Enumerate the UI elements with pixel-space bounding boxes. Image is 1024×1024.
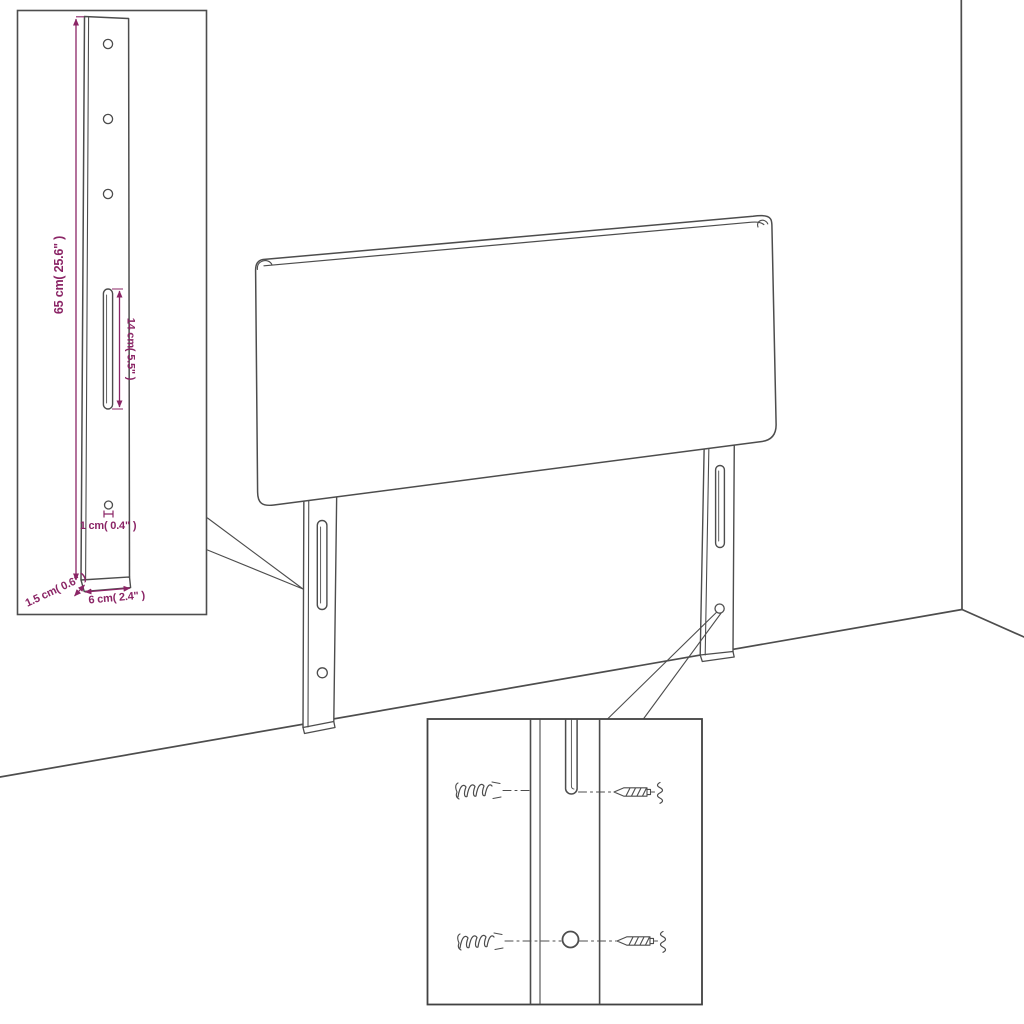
headboard-panel	[256, 216, 777, 506]
callout-lines	[208, 518, 721, 720]
product-diagram: 65 cm( 25.6" ) 14 cm( 5.5" ) 1 cm( 0.4" …	[0, 0, 1024, 1024]
dimension-1cm-label: 1 cm( 0.4" )	[80, 520, 137, 532]
dimension-65cm-label: 65 cm( 25.6" )	[52, 236, 66, 314]
headboard-right-leg	[700, 440, 734, 662]
headboard-left-leg	[303, 486, 337, 734]
mounting-inset-frame	[428, 719, 703, 1005]
wall-corner-line	[961, 0, 962, 610]
callout-left-inset-to-leg	[208, 518, 304, 589]
mounting-detail-inset	[428, 719, 703, 1005]
dimension-14cm-label: 14 cm( 5.5" )	[125, 318, 137, 381]
diagram-canvas: 65 cm( 25.6" ) 14 cm( 5.5" ) 1 cm( 0.4" …	[0, 0, 1024, 1024]
floor-corner-line-right	[962, 610, 1024, 638]
leg-detail-inset: 65 cm( 25.6" ) 14 cm( 5.5" ) 1 cm( 0.4" …	[18, 11, 207, 615]
